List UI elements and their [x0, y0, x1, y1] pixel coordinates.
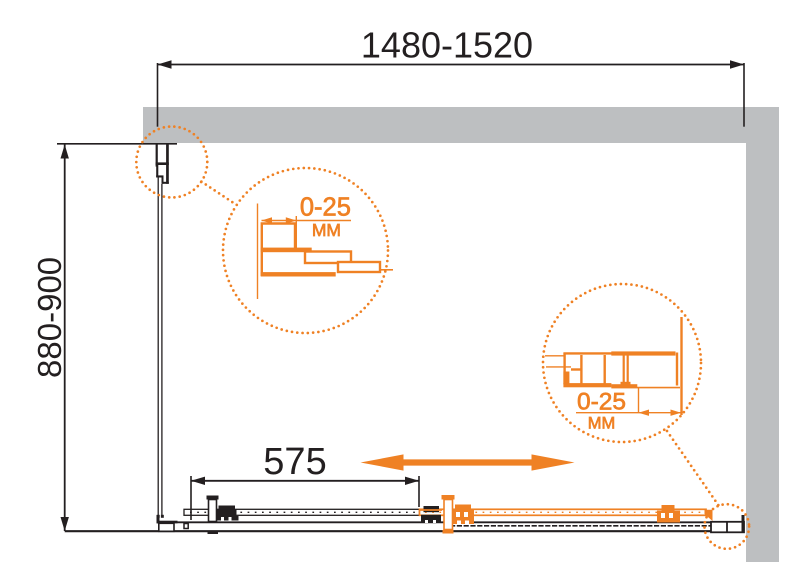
svg-text:1480-1520: 1480-1520: [361, 25, 533, 66]
svg-text:880-900: 880-900: [31, 257, 68, 378]
svg-text:0-25: 0-25: [577, 388, 626, 415]
svg-text:575: 575: [263, 441, 326, 483]
svg-text:ММ: ММ: [588, 415, 616, 433]
svg-text:ММ: ММ: [312, 220, 341, 240]
svg-text:0-25: 0-25: [300, 193, 351, 221]
